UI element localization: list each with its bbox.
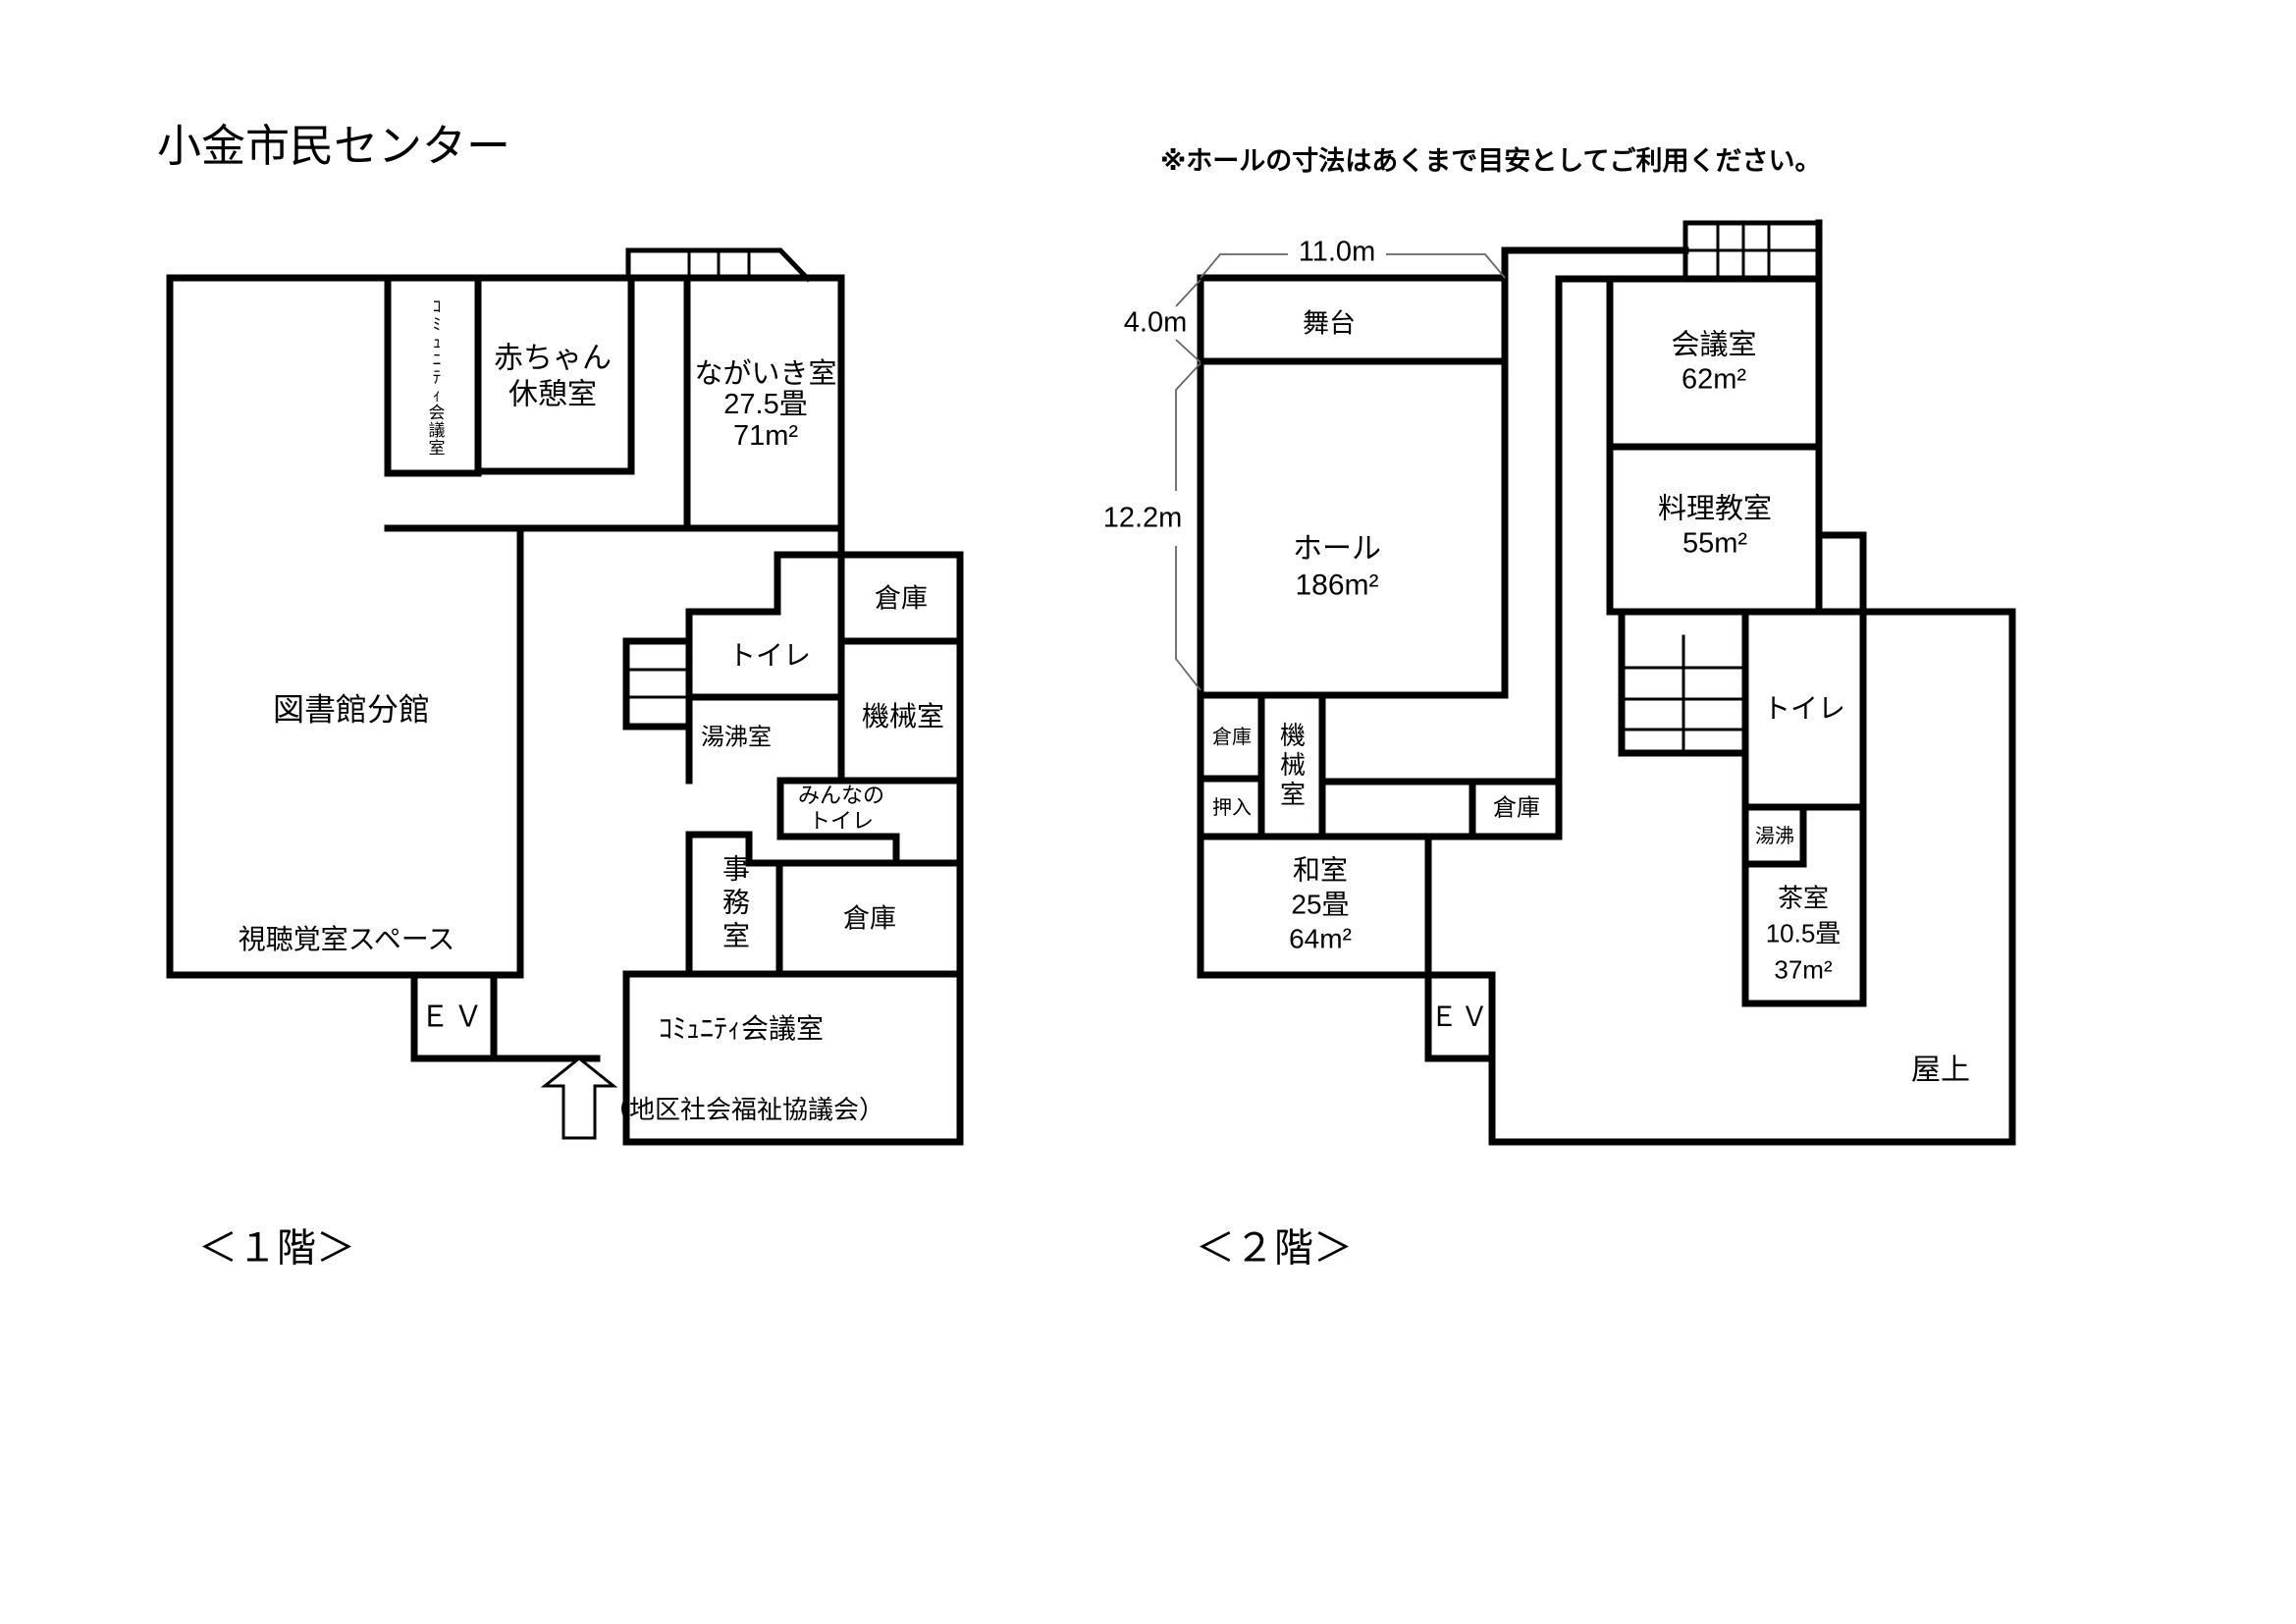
room-label-yuwakashi: 湯沸	[1755, 825, 1794, 848]
room-label-storage-top-1f: 倉庫	[875, 583, 928, 616]
page-title: 小金市民センター	[157, 110, 510, 174]
floor2-stairs-lines	[1622, 223, 1819, 753]
hall-dimension-note: ※ホールの寸法はあくまで目安としてご利用ください。	[1160, 139, 1821, 178]
room-label-community-meeting-small: ｺﾐｭﾆﾃｨ会議室	[423, 298, 448, 457]
room-label-hall: ホール 186m²	[1293, 531, 1381, 603]
floor-plan-drawing	[0, 0, 2296, 1624]
room-label-av-space: 視聴覚室スペース	[239, 923, 455, 956]
dimension-stage-label: 4.0m	[1124, 305, 1187, 340]
room-label-storage-a-2f: 倉庫	[1212, 726, 1252, 749]
room-label-elevator-1f: ＥＶ	[420, 1001, 487, 1037]
room-label-community-meeting: ｺﾐｭﾆﾃｨ会議室	[659, 1012, 824, 1046]
floor2-caption: ＜２階＞	[1196, 1225, 1353, 1273]
room-label-council: （地区社会福祉協議会）	[604, 1095, 884, 1126]
floor2-walls	[1201, 223, 2012, 1142]
room-label-hot-water-1f: 湯沸室	[701, 723, 772, 751]
room-label-machine-1f: 機械室	[862, 700, 944, 733]
floor-plan-page: 小金市民センター ※ホールの寸法はあくまで目安としてご利用ください。 ｺﾐｭﾆﾃ…	[0, 0, 2296, 1624]
room-label-meeting-2f: 会議室 62m²	[1671, 329, 1756, 399]
room-label-stage: 舞台	[1303, 308, 1356, 341]
dimension-hall-label: 12.2m	[1103, 501, 1183, 535]
dimension-width-label: 11.0m	[1299, 235, 1375, 269]
room-label-library: 図書館分館	[273, 690, 430, 729]
room-label-toilet-2f: トイレ	[1763, 692, 1845, 726]
room-label-washitsu: 和室 25畳 64m²	[1289, 853, 1352, 956]
room-label-everyone-toilet: みんなの トイレ	[798, 784, 884, 836]
room-label-storage-b-2f: 倉庫	[1493, 793, 1540, 822]
room-label-roof: 屋上	[1911, 1054, 1970, 1090]
room-label-nagaiki: ながいき室 27.5畳 71m²	[694, 359, 836, 452]
room-label-toilet-1f: トイレ	[728, 639, 811, 673]
room-label-cooking: 料理教室 55m²	[1658, 493, 1772, 563]
room-label-oshiire: 押入	[1212, 796, 1252, 820]
room-label-tea-room: 茶室 10.5畳 37m²	[1766, 880, 1842, 987]
room-label-elevator-2f: ＥＶ	[1430, 1001, 1491, 1034]
floor1-caption: ＜１階＞	[198, 1225, 355, 1273]
room-label-office: 事務室	[715, 854, 754, 954]
room-label-machine-2f: 機械室	[1274, 722, 1310, 810]
floor2-plan	[1176, 223, 2012, 1142]
room-label-storage-bottom-1f: 倉庫	[843, 903, 896, 936]
room-label-baby-rest: 赤ちゃん 休憩室	[494, 341, 612, 412]
